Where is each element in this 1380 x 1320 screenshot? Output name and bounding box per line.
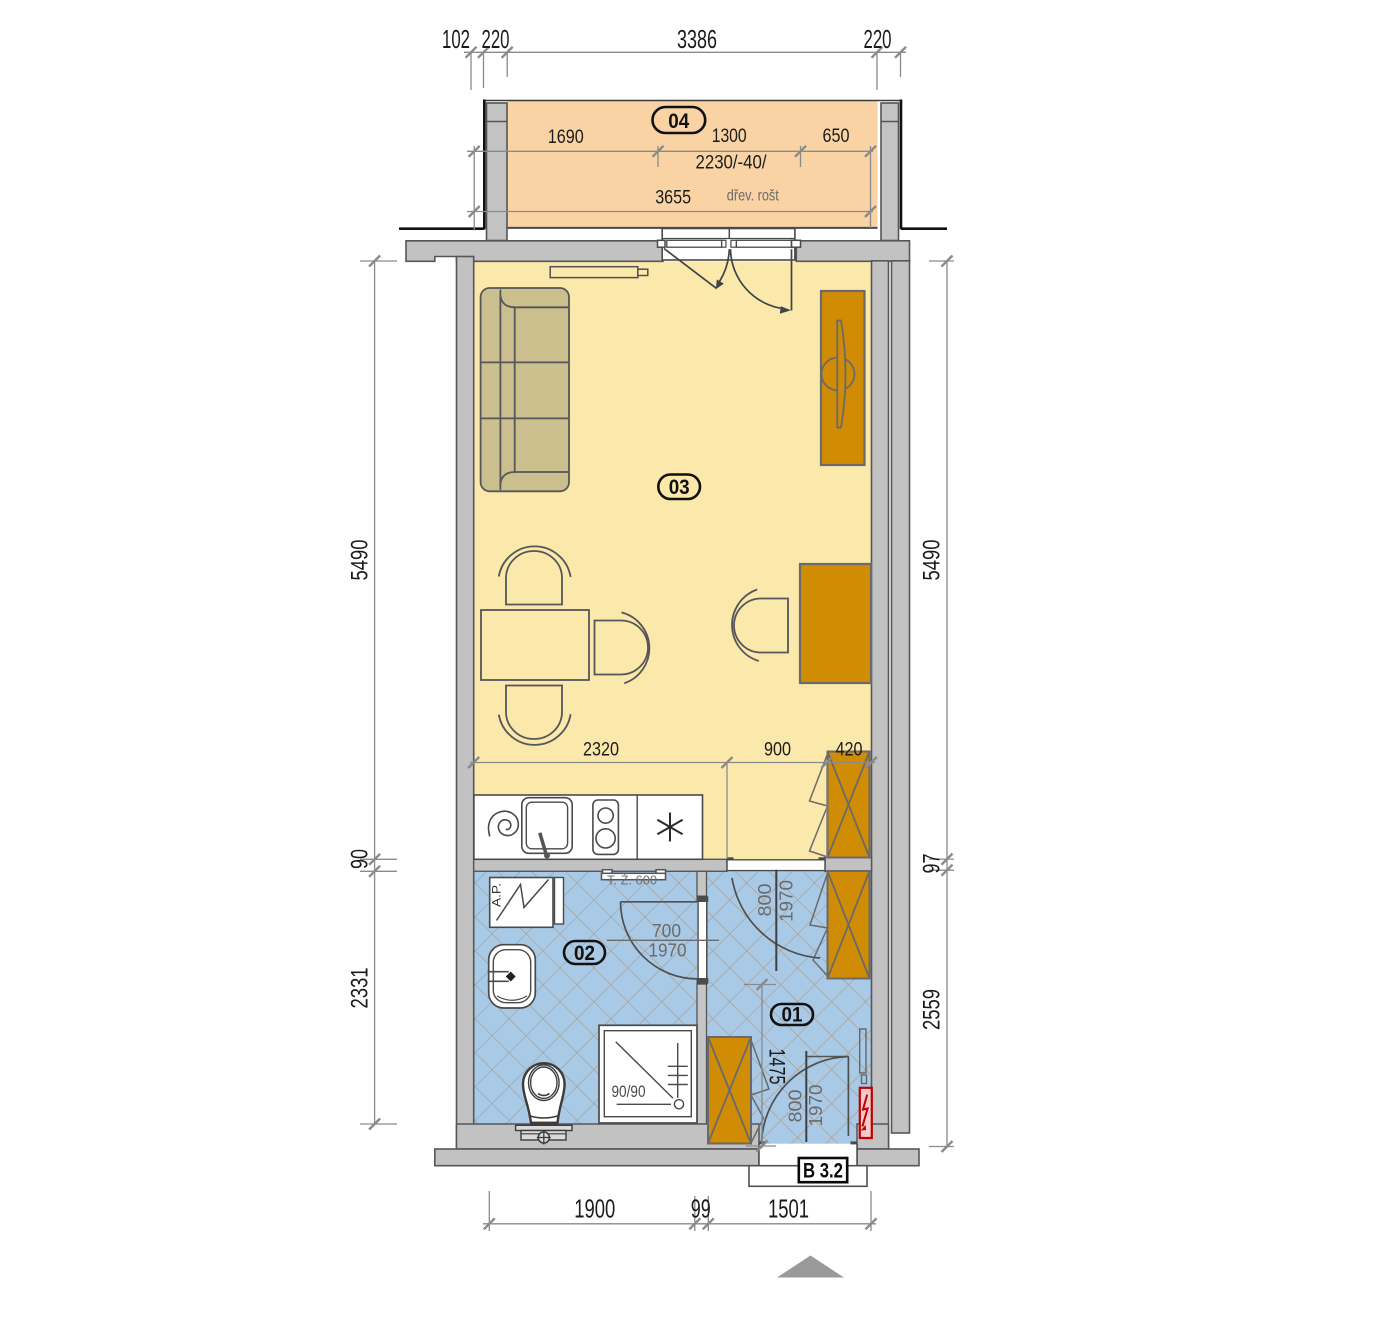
svg-text:2559: 2559 — [918, 989, 945, 1030]
svg-text:900: 900 — [764, 739, 791, 761]
svg-text:04: 04 — [668, 109, 689, 133]
svg-text:700: 700 — [652, 921, 681, 941]
svg-text:220: 220 — [864, 24, 892, 54]
svg-text:800: 800 — [785, 1090, 805, 1123]
svg-text:03: 03 — [669, 475, 690, 499]
svg-text:B 3.2: B 3.2 — [803, 1160, 843, 1183]
svg-text:02: 02 — [574, 941, 595, 965]
svg-text:T. Ž. 600: T. Ž. 600 — [607, 873, 657, 888]
svg-text:220: 220 — [482, 24, 510, 54]
svg-text:420: 420 — [836, 739, 863, 761]
svg-text:1970: 1970 — [806, 1085, 826, 1127]
svg-text:2331: 2331 — [346, 968, 373, 1009]
svg-text:650: 650 — [823, 125, 850, 147]
svg-text:1970: 1970 — [776, 880, 796, 922]
svg-text:5490: 5490 — [346, 540, 373, 581]
svg-text:90: 90 — [346, 849, 373, 869]
svg-text:2230/-40/: 2230/-40/ — [696, 151, 767, 173]
svg-text:1690: 1690 — [548, 126, 584, 148]
svg-text:1475: 1475 — [765, 1049, 790, 1085]
svg-text:dřev. rošt: dřev. rošt — [727, 187, 779, 204]
svg-text:1900: 1900 — [574, 1194, 615, 1224]
svg-text:1970: 1970 — [649, 940, 687, 960]
svg-text:3655: 3655 — [655, 186, 691, 208]
svg-text:800: 800 — [755, 884, 775, 917]
svg-text:A.P.: A.P. — [490, 883, 504, 907]
svg-text:99: 99 — [691, 1194, 711, 1224]
svg-text:5490: 5490 — [918, 540, 945, 581]
svg-text:1300: 1300 — [712, 125, 747, 147]
svg-text:1501: 1501 — [768, 1194, 809, 1224]
svg-text:90/90: 90/90 — [612, 1083, 646, 1101]
svg-text:2320: 2320 — [583, 739, 619, 761]
svg-text:97: 97 — [918, 854, 945, 874]
svg-text:102: 102 — [442, 24, 470, 54]
svg-text:01: 01 — [782, 1002, 803, 1026]
svg-text:3386: 3386 — [677, 24, 717, 54]
